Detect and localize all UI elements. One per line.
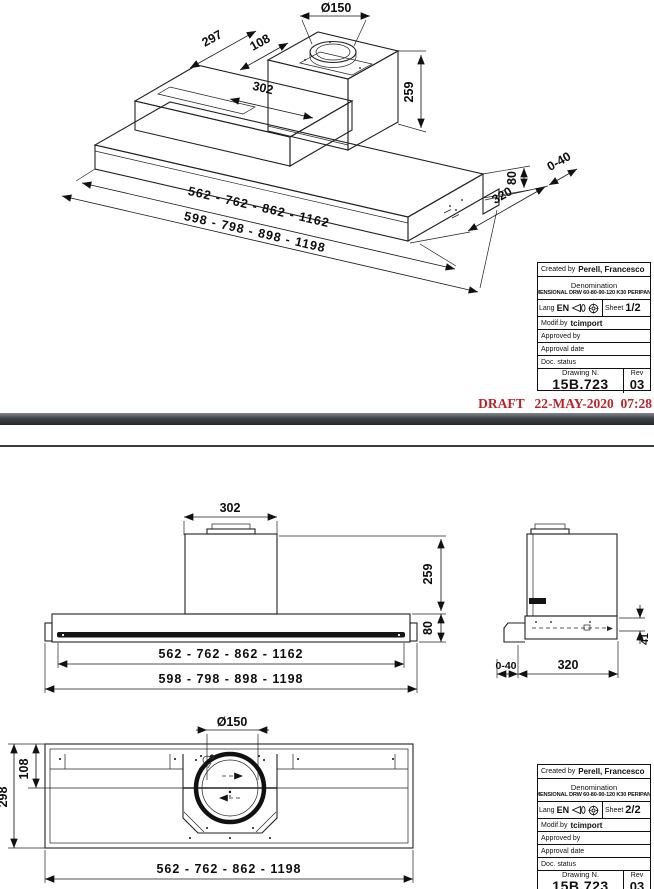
- title-block-2: Created by Perell, Francesco Denominatio…: [537, 764, 651, 889]
- bottom-dim-298: 298: [0, 787, 10, 808]
- front-dim-302: 302: [220, 501, 241, 515]
- doc-status-label: Doc. status: [541, 861, 576, 868]
- front-dim-259: 259: [421, 564, 435, 585]
- target-icon: [588, 805, 599, 816]
- side-dim-0-40: 0-40: [495, 660, 516, 672]
- dim-80: 80: [505, 171, 519, 185]
- lang-label: Lang: [539, 305, 555, 312]
- sheet-value: 1/2: [625, 302, 640, 314]
- title-block-1: Created by Perell, Francesco Denominatio…: [537, 262, 651, 391]
- lang-label: Lang: [539, 807, 555, 814]
- dim-108: 108: [248, 31, 273, 53]
- iso-dimensions: Ø150 297 108 302 259 80 320 0-40: [62, 1, 577, 292]
- approved-by-label: Approved by: [541, 835, 580, 842]
- rev-value: 03: [630, 880, 644, 889]
- modif-by-value: tcimport: [570, 821, 602, 830]
- target-icon: [588, 303, 599, 314]
- lang-value: EN: [557, 303, 570, 313]
- front-dim-80: 80: [421, 621, 435, 635]
- denomination-label: Denomination: [571, 281, 617, 290]
- dim-0-40: 0-40: [545, 149, 574, 174]
- side-dim-320: 320: [558, 658, 579, 672]
- doc-status-label: Doc. status: [541, 359, 576, 366]
- sheet-label: Sheet: [605, 305, 623, 312]
- created-by-value: Perell, Francesco: [578, 767, 644, 776]
- drawing-n-value: 15B.723: [552, 879, 608, 889]
- modif-by-value: tcimport: [570, 319, 602, 328]
- dim-297: 297: [200, 27, 225, 49]
- dim-320: 320: [489, 184, 514, 207]
- created-by-value: Perell, Francesco: [578, 265, 644, 274]
- iso-mid-box: [135, 65, 352, 166]
- approval-date-label: Approval date: [541, 848, 584, 855]
- first-angle-projection-icon: [571, 303, 586, 313]
- sheet-label: Sheet: [605, 807, 623, 814]
- page-1: Ø150 297 108 302 259 80 320 0-40: [0, 0, 654, 412]
- lang-value: EN: [557, 805, 570, 815]
- front-dim-widths-inner: 562 - 762 - 862 - 1162: [158, 647, 303, 661]
- front-view: 302 259 80 562 - 762 - 862 - 1162: [45, 501, 446, 693]
- iso-chimney: [268, 32, 398, 150]
- rev-value: 03: [630, 378, 644, 392]
- page-2: 302 259 80 562 - 762 - 862 - 1162: [0, 445, 654, 889]
- bottom-dim-108: 108: [17, 759, 31, 780]
- side-dim-41: 41: [639, 633, 651, 645]
- approval-date-label: Approval date: [541, 346, 584, 353]
- modif-by-label: Modif.by: [541, 822, 567, 829]
- page-separator: [0, 413, 654, 425]
- drawing-n-value: 15B.723: [552, 377, 608, 392]
- sheet-value: 2/2: [625, 804, 640, 816]
- first-angle-projection-icon: [571, 805, 586, 815]
- side-view: 41 0-40 320: [495, 524, 651, 678]
- bottom-dim-widths: 562 - 762 - 862 - 1198: [156, 862, 301, 876]
- denomination-value: DIMENSIONAL DRW 60-80-90-120 K30 PERIPAN…: [538, 290, 650, 296]
- denomination-label: Denomination: [571, 783, 617, 792]
- modif-by-label: Modif.by: [541, 320, 567, 327]
- bottom-dim-collar: Ø150: [217, 715, 248, 729]
- dim-collar-diameter: Ø150: [321, 1, 352, 15]
- created-by-label: Created by: [541, 266, 575, 273]
- dim-259: 259: [402, 82, 416, 103]
- draft-stamp: DRAFT 22-MAY-2020 07:28: [478, 396, 652, 412]
- approved-by-label: Approved by: [541, 333, 580, 340]
- bottom-view: Ø150: [0, 715, 413, 883]
- denomination-value: DIMENSIONAL DRW 60-80-90-120 K30 PERIPAN…: [538, 792, 650, 798]
- front-dim-widths-outer: 598 - 798 - 898 - 1198: [158, 672, 303, 686]
- drawing-document: Ø150 297 108 302 259 80 320 0-40: [0, 0, 654, 889]
- created-by-label: Created by: [541, 768, 575, 775]
